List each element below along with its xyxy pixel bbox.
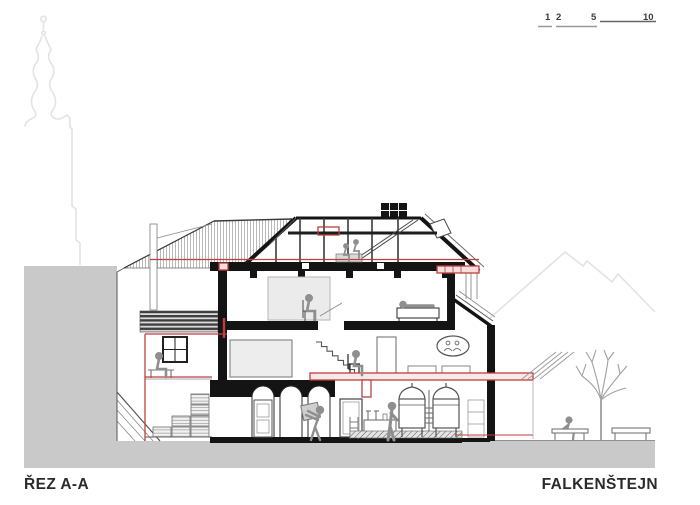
wing-window <box>163 337 187 362</box>
terrain-upper-block <box>24 266 117 468</box>
scale-label-5: 5 <box>591 12 597 23</box>
terrace-post <box>150 224 157 310</box>
cut-right-wall-upper <box>447 272 455 322</box>
interior-door <box>377 337 396 375</box>
scale-label-2: 2 <box>556 12 561 23</box>
louver-band <box>140 311 218 332</box>
section-title: ŘEZ A-A <box>24 475 89 493</box>
cut-left-wall <box>218 268 227 380</box>
cut-bay-wall <box>487 325 495 441</box>
project-title: FALKENŠTEJN <box>542 475 658 493</box>
two-people-emblem <box>437 336 469 356</box>
vault-arch <box>280 386 302 437</box>
second-floor-slab-left <box>227 321 318 330</box>
scale-label-1: 1 <box>545 12 551 23</box>
section-drawing: 1 2 5 10 ŘEZ A-A FALKENŠTEJN <box>0 0 700 505</box>
slab-gap <box>302 263 309 269</box>
panel-door <box>254 400 272 437</box>
wall-shelf <box>468 400 484 437</box>
brewery-platform <box>350 431 462 438</box>
terrain-ground-band <box>24 441 655 468</box>
bay-bench <box>442 366 470 373</box>
bay-floor-slab <box>462 438 490 442</box>
wall-panel <box>268 277 330 320</box>
projection-screen <box>230 340 292 377</box>
architectural-section-sheet: 1 2 5 10 ŘEZ A-A FALKENŠTEJN <box>0 0 700 505</box>
slab-gap <box>377 263 384 269</box>
bay-bench <box>408 366 436 373</box>
second-floor-slab-right <box>344 321 455 330</box>
